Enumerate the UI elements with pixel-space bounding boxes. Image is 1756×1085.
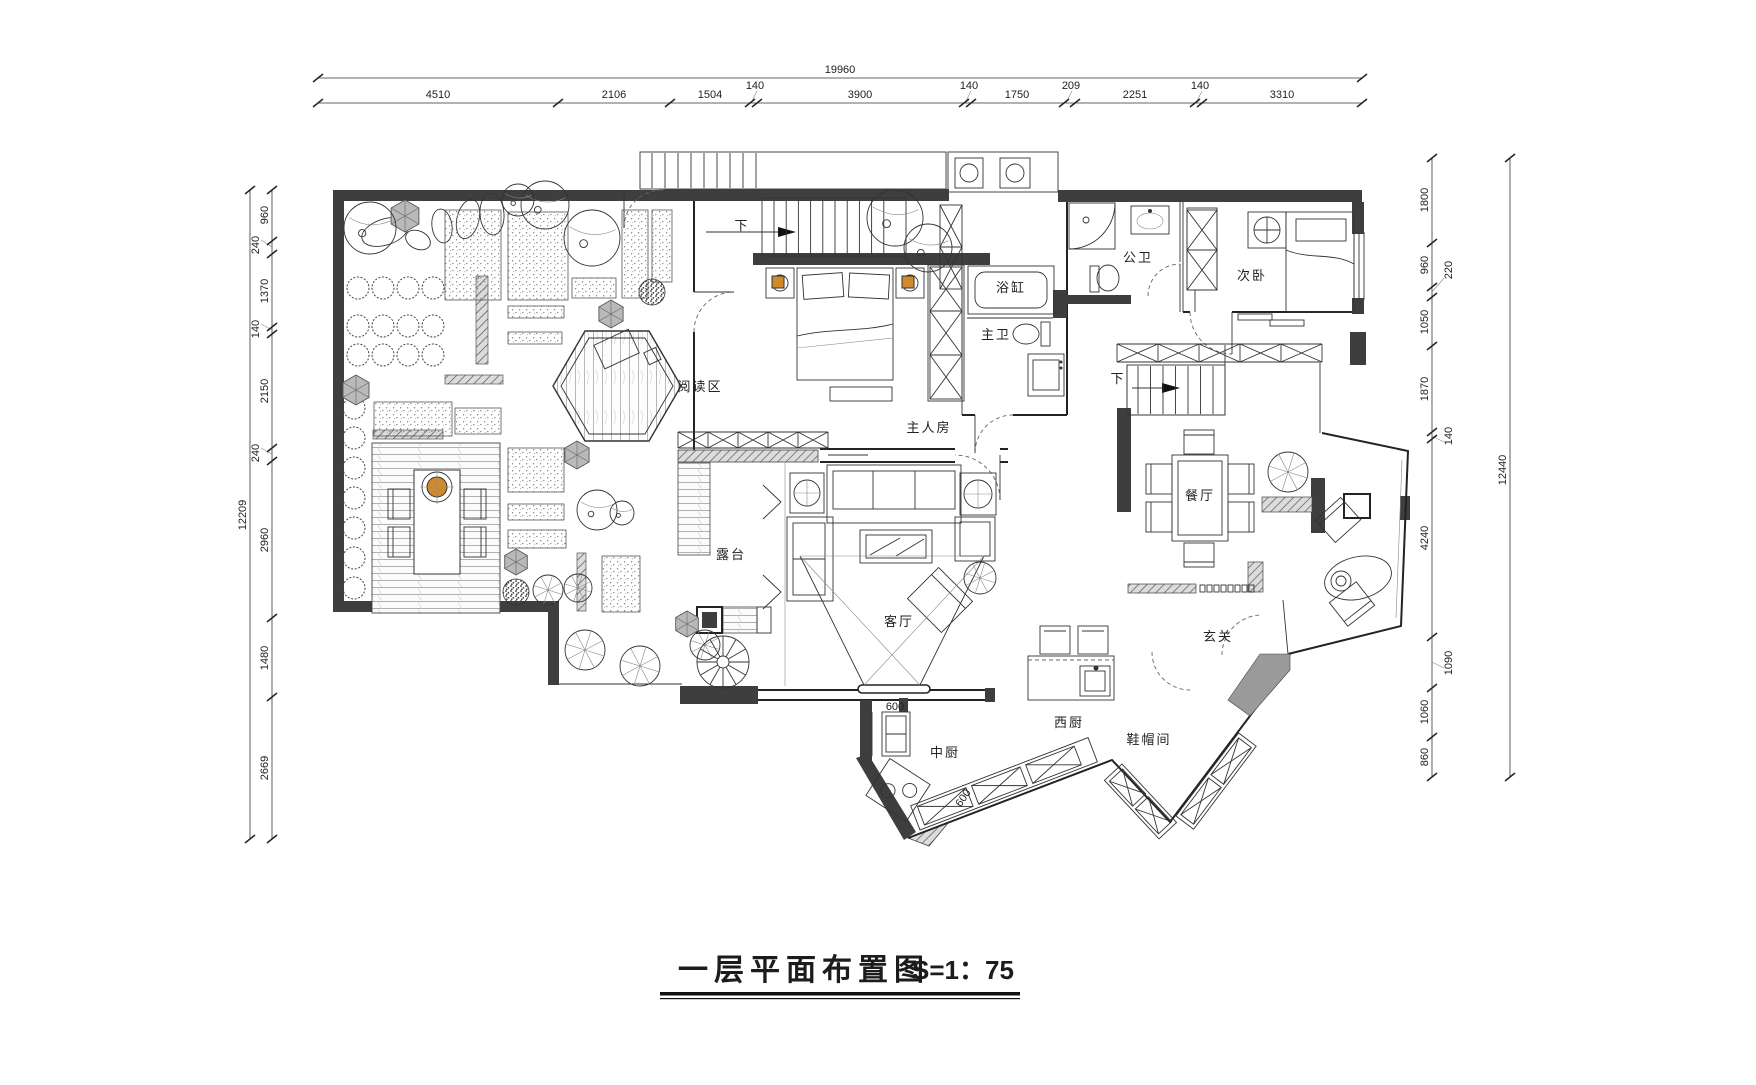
shoe-cabinet-dots bbox=[1221, 585, 1226, 592]
dim-sublabel: 1090 bbox=[1443, 651, 1455, 675]
top-dimension-chain: 19960 4510 2106 1504 140 3900 140 1750 2… bbox=[318, 64, 1362, 103]
spiral-stair bbox=[728, 649, 745, 659]
dim-label: 1050 bbox=[1419, 310, 1431, 334]
label-western-kitchen: 西厨 bbox=[1054, 715, 1084, 730]
dim-label: 2150 bbox=[259, 379, 271, 403]
dense-shrub-icon bbox=[639, 279, 665, 305]
dim-total-left: 12209 bbox=[237, 500, 249, 531]
planting-bed bbox=[652, 210, 672, 282]
door-arc bbox=[955, 455, 1000, 500]
spiral-stair bbox=[700, 665, 717, 675]
shrub-icon bbox=[343, 517, 365, 539]
toilet-icon bbox=[1013, 324, 1039, 344]
shrub-icon bbox=[372, 277, 394, 299]
direction-arrow-icon bbox=[778, 227, 796, 237]
dim-label: 1504 bbox=[698, 89, 722, 101]
planting-bed bbox=[508, 212, 568, 300]
shoe-cabinet-dots bbox=[1207, 585, 1212, 592]
shrub-icon bbox=[343, 427, 365, 449]
tree-icon bbox=[344, 202, 396, 254]
shrub-icon bbox=[422, 277, 444, 299]
dim-total-top: 19960 bbox=[825, 64, 856, 76]
shrub-icon bbox=[397, 344, 419, 366]
stool bbox=[1040, 626, 1070, 654]
door-arc bbox=[975, 415, 1013, 453]
dim-label: 960 bbox=[259, 206, 271, 224]
label-stairs-down: 下 bbox=[734, 218, 749, 233]
dim-label: 960 bbox=[1419, 256, 1431, 274]
shoe-cabinet-dots bbox=[1228, 585, 1233, 592]
outdoor-dining-deck bbox=[372, 443, 500, 613]
shoe-cabinet-dots bbox=[1242, 585, 1247, 592]
hex-pavilion-deck bbox=[553, 322, 681, 441]
shrub-icon bbox=[347, 277, 369, 299]
planting-bed bbox=[445, 210, 501, 300]
sliding-door bbox=[1238, 314, 1272, 320]
spiral-stair bbox=[710, 639, 720, 656]
shrub-icon bbox=[397, 315, 419, 337]
shrub-icon bbox=[397, 277, 419, 299]
label-dining-room: 餐厅 bbox=[1185, 488, 1215, 503]
shrub-icon bbox=[343, 487, 365, 509]
tree-icon bbox=[570, 227, 616, 235]
shrub-icon bbox=[343, 457, 365, 479]
label-chinese-kitchen: 中厨 bbox=[930, 745, 960, 760]
label-master-bedroom: 主人房 bbox=[906, 420, 951, 435]
dim-sublabel: 140 bbox=[1443, 427, 1455, 445]
cloakroom-cabinets bbox=[1104, 764, 1176, 839]
label-stairs-down: 下 bbox=[1110, 371, 1125, 386]
dim-label: 2960 bbox=[259, 528, 271, 552]
kitchen-counter bbox=[1028, 656, 1114, 700]
dim-label: 1060 bbox=[1419, 700, 1431, 724]
tree-icon bbox=[581, 502, 614, 508]
left-dimension-chain: 12209 960 240 1370 140 2150 240 2960 148… bbox=[237, 190, 272, 839]
tree-icon bbox=[873, 207, 919, 215]
label-second-bedroom: 次卧 bbox=[1237, 268, 1267, 283]
foyer-bench bbox=[1128, 584, 1196, 593]
washer-icon bbox=[960, 164, 978, 182]
dim-label: 2669 bbox=[259, 756, 271, 780]
folding-door-icon bbox=[763, 485, 781, 519]
terrace-deck bbox=[678, 463, 710, 555]
toilet-icon bbox=[1097, 265, 1119, 291]
label-master-bath: 主卫 bbox=[981, 327, 1011, 342]
tree-icon bbox=[564, 210, 620, 266]
planting-bed bbox=[508, 504, 564, 520]
shoe-cabinet-dots bbox=[1214, 585, 1219, 592]
shrub-icon bbox=[372, 315, 394, 337]
shrub-icon bbox=[343, 547, 365, 569]
dim-total-right: 12440 bbox=[1497, 455, 1509, 486]
door-arc bbox=[1152, 652, 1190, 690]
door-arc bbox=[1148, 264, 1180, 296]
washer-icon bbox=[1006, 164, 1024, 182]
dim-label: 860 bbox=[1419, 748, 1431, 766]
shrub-icon bbox=[347, 344, 369, 366]
planting-bed bbox=[602, 556, 640, 612]
drawing-scale: S=1：75 bbox=[912, 955, 1014, 985]
tv-screen bbox=[858, 685, 930, 693]
floorplan-drawing: 19960 4510 2106 1504 140 3900 140 1750 2… bbox=[0, 0, 1756, 1080]
sliding-door bbox=[1270, 320, 1304, 326]
planting-bed bbox=[572, 278, 616, 298]
spiral-stair bbox=[726, 639, 736, 656]
wall-lamp-icon bbox=[902, 276, 914, 288]
shower bbox=[1069, 203, 1115, 249]
dim-label: 140 bbox=[1191, 80, 1209, 92]
shoe-cabinet-dots bbox=[1200, 585, 1205, 592]
dim-label: 3310 bbox=[1270, 89, 1294, 101]
furniture bbox=[678, 203, 1396, 839]
spiral-stair bbox=[726, 667, 736, 684]
staircase-lower bbox=[1127, 365, 1225, 415]
porch-seating bbox=[1315, 497, 1396, 626]
dim-label: 3900 bbox=[848, 89, 872, 101]
tree-icon bbox=[616, 513, 620, 517]
label-opening-width: 600 bbox=[886, 701, 904, 713]
door-arc bbox=[694, 292, 734, 332]
spiral-stair bbox=[710, 667, 720, 684]
direction-arrow-icon bbox=[1162, 383, 1180, 393]
shrub-icon bbox=[343, 577, 365, 599]
folding-door-icon bbox=[763, 575, 781, 609]
planting-bed bbox=[508, 448, 564, 492]
tree-icon bbox=[580, 240, 588, 248]
tree-icon bbox=[511, 201, 515, 205]
dim-label: 209 bbox=[1062, 80, 1080, 92]
label-cloakroom: 鞋帽间 bbox=[1126, 732, 1171, 747]
floorplan-page: 19960 4510 2106 1504 140 3900 140 1750 2… bbox=[0, 0, 1756, 1080]
planting-bed bbox=[508, 530, 566, 548]
tree-icon bbox=[610, 501, 634, 525]
spiral-stair bbox=[700, 649, 717, 659]
spiral-stair bbox=[717, 656, 729, 668]
dim-label: 140 bbox=[746, 80, 764, 92]
dim-label: 1750 bbox=[1005, 89, 1029, 101]
dim-label: 1800 bbox=[1419, 188, 1431, 212]
dim-label: 140 bbox=[250, 320, 262, 338]
spiral-stair bbox=[728, 665, 745, 675]
dim-label: 1370 bbox=[259, 279, 271, 303]
shrub-icon bbox=[372, 344, 394, 366]
shrub-icon bbox=[422, 315, 444, 337]
dim-label: 4510 bbox=[426, 89, 450, 101]
planting-bed bbox=[374, 402, 452, 436]
tree-icon bbox=[577, 490, 617, 530]
room-labels: 阅读区 主人房 浴缸 主卫 公卫 次卧 餐厅 露台 客厅 玄关 中厨 西厨 鞋帽… bbox=[677, 218, 1267, 809]
label-living-room: 客厅 bbox=[884, 614, 914, 629]
label-bathtub: 浴缸 bbox=[996, 280, 1026, 295]
dim-label: 4240 bbox=[1419, 526, 1431, 550]
dim-label: 240 bbox=[250, 444, 262, 462]
right-dimension-chain: 12440 1800 960 1050 1870 4240 1060 860 2… bbox=[1419, 158, 1510, 777]
wardrobe bbox=[1187, 208, 1217, 290]
label-terrace: 露台 bbox=[716, 547, 746, 562]
label-foyer: 玄关 bbox=[1203, 629, 1233, 644]
stool bbox=[1078, 626, 1108, 654]
cloakroom-cabinets bbox=[1176, 733, 1256, 829]
door-arc bbox=[1190, 312, 1232, 354]
drawing-title-block: 一层平面布置图 S=1：75 bbox=[660, 954, 1020, 999]
shrub-icon bbox=[347, 315, 369, 337]
dim-sublabel: 220 bbox=[1443, 261, 1455, 279]
master-bed bbox=[797, 268, 893, 401]
dim-label: 2106 bbox=[602, 89, 626, 101]
tree-icon bbox=[588, 511, 594, 517]
planting-bed bbox=[508, 306, 564, 318]
living-room-set bbox=[787, 465, 996, 633]
dense-shrub-icon bbox=[503, 579, 529, 605]
planting-bed bbox=[455, 408, 501, 434]
building-walls bbox=[624, 152, 1410, 846]
wall-lamp-icon bbox=[772, 276, 784, 288]
drawing-title: 一层平面布置图 bbox=[678, 954, 930, 987]
dim-label: 240 bbox=[250, 236, 262, 254]
dim-label: 140 bbox=[960, 80, 978, 92]
label-counter-width: 600 bbox=[953, 787, 973, 809]
shoe-cabinet-dots bbox=[1235, 585, 1240, 592]
tree-icon bbox=[612, 508, 632, 511]
label-reading-area: 阅读区 bbox=[677, 379, 722, 394]
dim-label: 1480 bbox=[259, 646, 271, 670]
planting-bed bbox=[508, 332, 562, 344]
dim-label: 2251 bbox=[1123, 89, 1147, 101]
dim-label: 1870 bbox=[1419, 377, 1431, 401]
shrub-icon bbox=[422, 344, 444, 366]
kitchen-sink bbox=[1080, 666, 1110, 696]
label-guest-bath: 公卫 bbox=[1123, 250, 1153, 265]
